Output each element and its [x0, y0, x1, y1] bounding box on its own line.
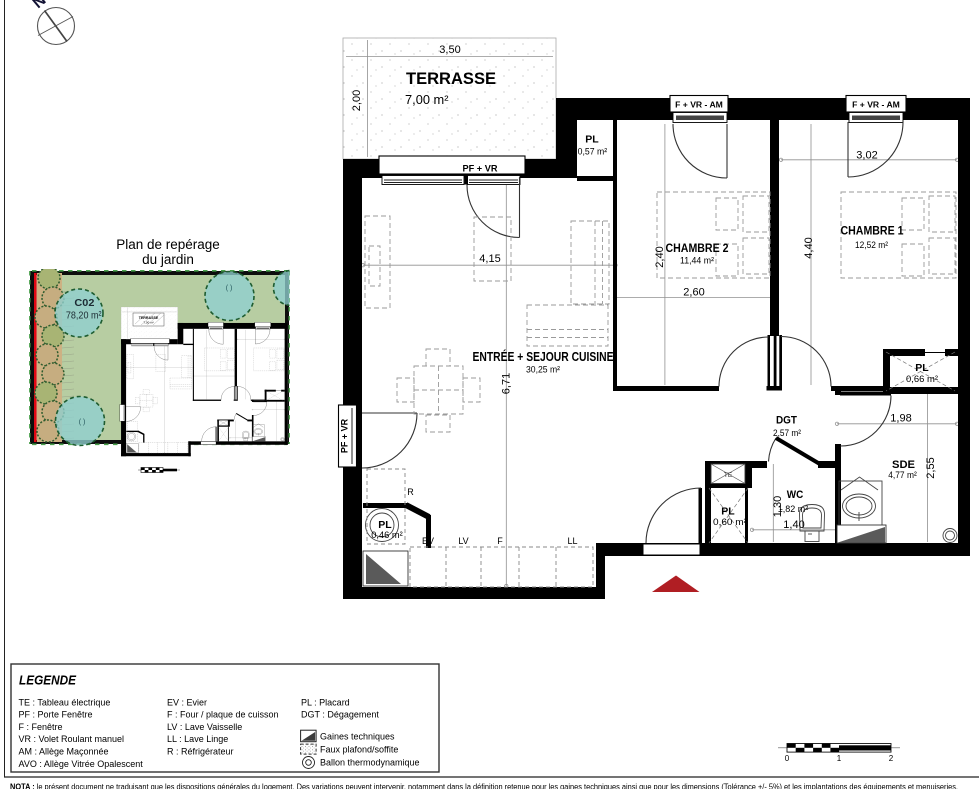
svg-text:4,40: 4,40	[803, 237, 815, 258]
svg-text:F + VR - AM: F + VR - AM	[852, 100, 900, 110]
svg-text:TE: TE	[724, 472, 733, 479]
svg-text:0,46 m²: 0,46 m²	[371, 530, 403, 541]
svg-text:F: F	[497, 536, 503, 546]
svg-text:Gaines techniques: Gaines techniques	[320, 732, 395, 742]
svg-text:2,57 m²: 2,57 m²	[773, 428, 801, 439]
svg-text:0,57 m²: 0,57 m²	[578, 147, 608, 158]
svg-text:0: 0	[785, 754, 790, 763]
svg-text:PL: PL	[585, 134, 599, 146]
svg-text:7,00 m²: 7,00 m²	[405, 92, 449, 107]
svg-text:7,00 m²: 7,00 m²	[143, 321, 153, 325]
svg-text:1,40: 1,40	[783, 519, 804, 531]
svg-text:4,77 m²: 4,77 m²	[888, 470, 917, 481]
svg-text:TE : Tableau électrique: TE : Tableau électrique	[19, 697, 111, 707]
svg-text:2,55: 2,55	[925, 457, 937, 478]
svg-text:EV: EV	[422, 536, 434, 546]
svg-text:2,40: 2,40	[654, 246, 666, 267]
svg-text:LEGENDE: LEGENDE	[19, 674, 77, 688]
svg-text:3,02: 3,02	[856, 150, 877, 162]
svg-text:F + VR - AM: F + VR - AM	[675, 100, 723, 110]
svg-text:WC: WC	[787, 489, 804, 501]
svg-text:78,20 m²: 78,20 m²	[66, 310, 102, 322]
svg-text:2,60: 2,60	[683, 287, 704, 299]
svg-text:TERRASSE: TERRASSE	[406, 69, 496, 88]
svg-text:LL: LL	[567, 536, 577, 546]
svg-text:Faux plafond/soffite: Faux plafond/soffite	[320, 744, 398, 754]
svg-text:6,71: 6,71	[501, 373, 513, 394]
svg-text:11,44 m²: 11,44 m²	[680, 256, 714, 267]
svg-text:PL: PL	[721, 506, 735, 518]
svg-text:LV : Lave Vaisselle: LV : Lave Vaisselle	[167, 722, 242, 732]
svg-text:2,00: 2,00	[351, 90, 363, 111]
svg-text:DGT: DGT	[776, 415, 797, 427]
svg-text:LL : Lave Linge: LL : Lave Linge	[167, 734, 228, 744]
svg-text:C02: C02	[74, 298, 94, 309]
svg-text:F : Fenêtre: F : Fenêtre	[19, 722, 63, 732]
svg-text:( ): ( )	[226, 285, 233, 292]
svg-text:1: 1	[837, 754, 842, 763]
svg-text:4,15: 4,15	[479, 253, 500, 265]
svg-text:30,25 m²: 30,25 m²	[526, 365, 560, 376]
svg-text:VR : Volet Roulant manuel: VR : Volet Roulant manuel	[19, 734, 125, 744]
svg-text:1,82 m²: 1,82 m²	[778, 504, 809, 515]
svg-text:0,66 m²: 0,66 m²	[906, 374, 938, 385]
svg-text:3,50: 3,50	[439, 44, 460, 56]
svg-text:ENTRÉE + SEJOUR CUISINE: ENTRÉE + SEJOUR CUISINE	[473, 349, 614, 364]
svg-text:Ballon thermodynamique: Ballon thermodynamique	[320, 758, 420, 768]
svg-text:AVO : Allège Vitrée Opalesce: AVO : Allège Vitrée Opalescent	[19, 759, 144, 769]
svg-text:du jardin: du jardin	[142, 252, 194, 267]
svg-text:0,60 m²: 0,60 m²	[713, 517, 747, 528]
svg-text:12,52 m²: 12,52 m²	[855, 240, 888, 251]
svg-text:LV: LV	[458, 536, 468, 546]
svg-text:PF + VR: PF + VR	[340, 418, 350, 453]
svg-text:NOTA : le présent document ne: NOTA : le présent document ne traduisant…	[10, 783, 958, 789]
svg-text:AM : Allège Maçonnée: AM : Allège Maçonnée	[19, 747, 109, 757]
svg-text:1,98: 1,98	[890, 413, 911, 425]
svg-text:DGT : Dégagement: DGT : Dégagement	[301, 710, 379, 720]
svg-text:PL: PL	[915, 362, 929, 374]
svg-text:PF : Porte Fenêtre: PF : Porte Fenêtre	[19, 710, 93, 720]
svg-text:EV : Evier: EV : Evier	[167, 697, 207, 707]
svg-text:R: R	[407, 487, 414, 497]
svg-text:TERRASSE: TERRASSE	[139, 316, 159, 320]
svg-text:Plan de repérage: Plan de repérage	[116, 237, 220, 252]
svg-text:( ): ( )	[79, 419, 86, 426]
svg-text:F : Four / plaque de cuisson: F : Four / plaque de cuisson	[167, 710, 279, 720]
svg-text:CHAMBRE 2: CHAMBRE 2	[666, 241, 729, 255]
svg-text:PF + VR: PF + VR	[463, 164, 498, 174]
svg-text:CHAMBRE 1: CHAMBRE 1	[841, 224, 904, 238]
svg-text:PL : Placard: PL : Placard	[301, 697, 350, 707]
svg-text:R : Réfrigérateur: R : Réfrigérateur	[167, 747, 234, 757]
svg-text:2: 2	[889, 754, 894, 763]
